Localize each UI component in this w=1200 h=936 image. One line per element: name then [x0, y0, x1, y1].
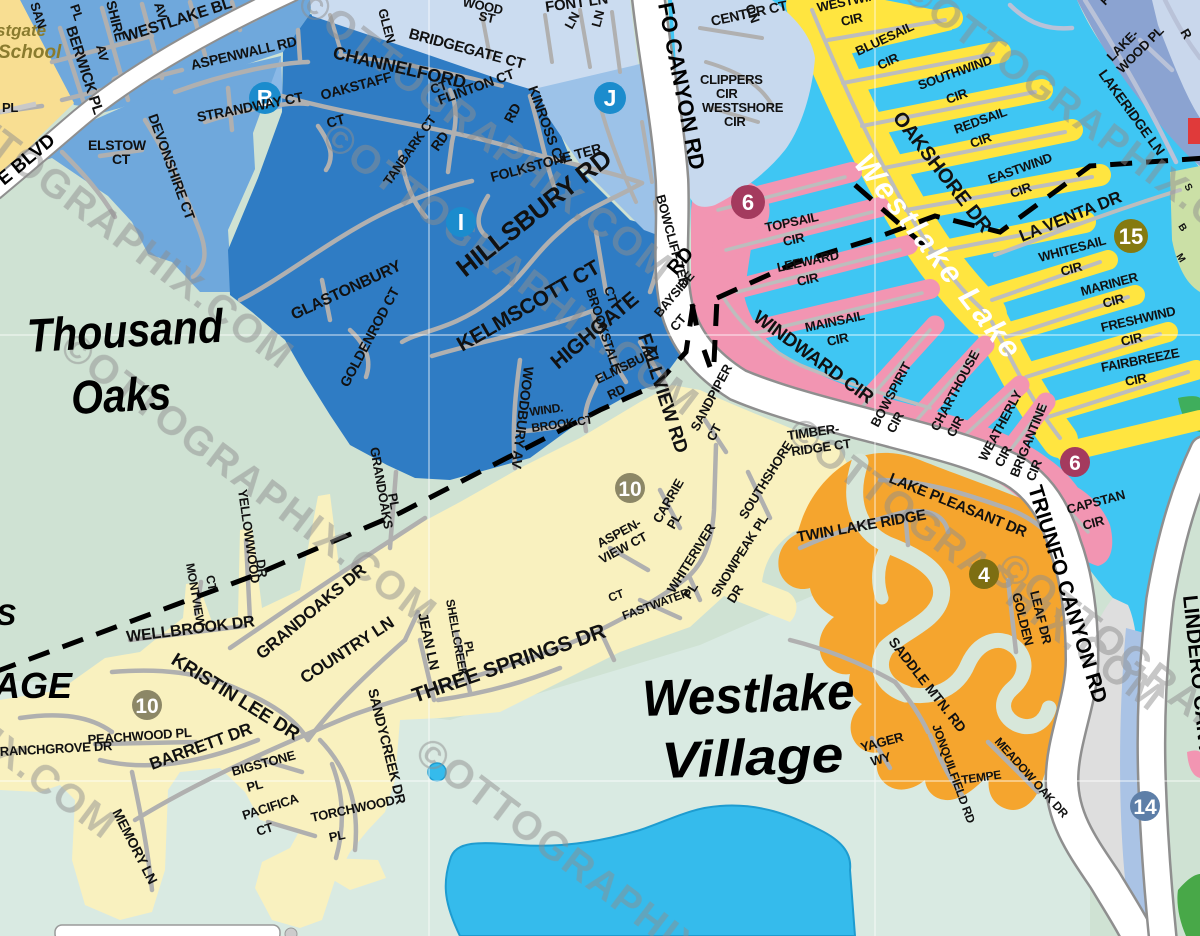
svg-text:4: 4	[978, 564, 990, 587]
svg-text:Thousand: Thousand	[26, 299, 226, 362]
svg-text:PL: PL	[461, 640, 477, 657]
svg-text:J: J	[604, 85, 617, 111]
svg-text:School: School	[0, 42, 62, 63]
svg-text:I: I	[458, 209, 464, 235]
svg-text:CIR: CIR	[716, 86, 738, 101]
svg-text:Oaks: Oaks	[70, 366, 173, 424]
svg-text:S: S	[0, 599, 16, 632]
svg-text:PL: PL	[2, 100, 18, 115]
svg-text:10: 10	[618, 478, 641, 501]
svg-text:6: 6	[742, 190, 754, 215]
svg-text:6: 6	[1069, 452, 1081, 475]
svg-text:CIR: CIR	[724, 114, 746, 129]
svg-text:AGE: AGE	[0, 665, 73, 706]
svg-text:WESTSHORE: WESTSHORE	[702, 100, 784, 115]
svg-text:CLIPPERS: CLIPPERS	[700, 72, 763, 87]
svg-text:10: 10	[135, 695, 158, 718]
svg-text:DR: DR	[253, 558, 271, 579]
svg-text:Village: Village	[660, 726, 844, 789]
svg-text:PL: PL	[385, 492, 403, 511]
svg-text:Westlake: Westlake	[641, 663, 855, 727]
svg-text:15: 15	[1119, 224, 1143, 249]
svg-text:14: 14	[1133, 796, 1157, 819]
svg-text:CT: CT	[112, 151, 131, 167]
